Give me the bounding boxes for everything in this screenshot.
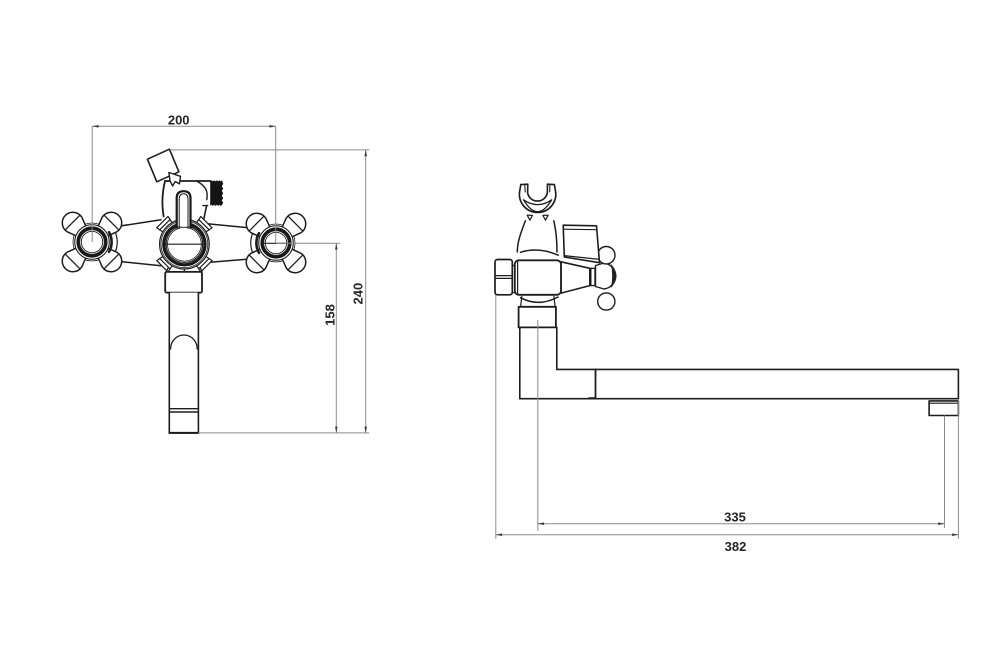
svg-text:382: 382: [725, 539, 747, 554]
svg-text:158: 158: [323, 304, 338, 326]
svg-text:335: 335: [724, 509, 746, 524]
svg-text:200: 200: [168, 113, 190, 128]
svg-text:240: 240: [350, 283, 365, 305]
